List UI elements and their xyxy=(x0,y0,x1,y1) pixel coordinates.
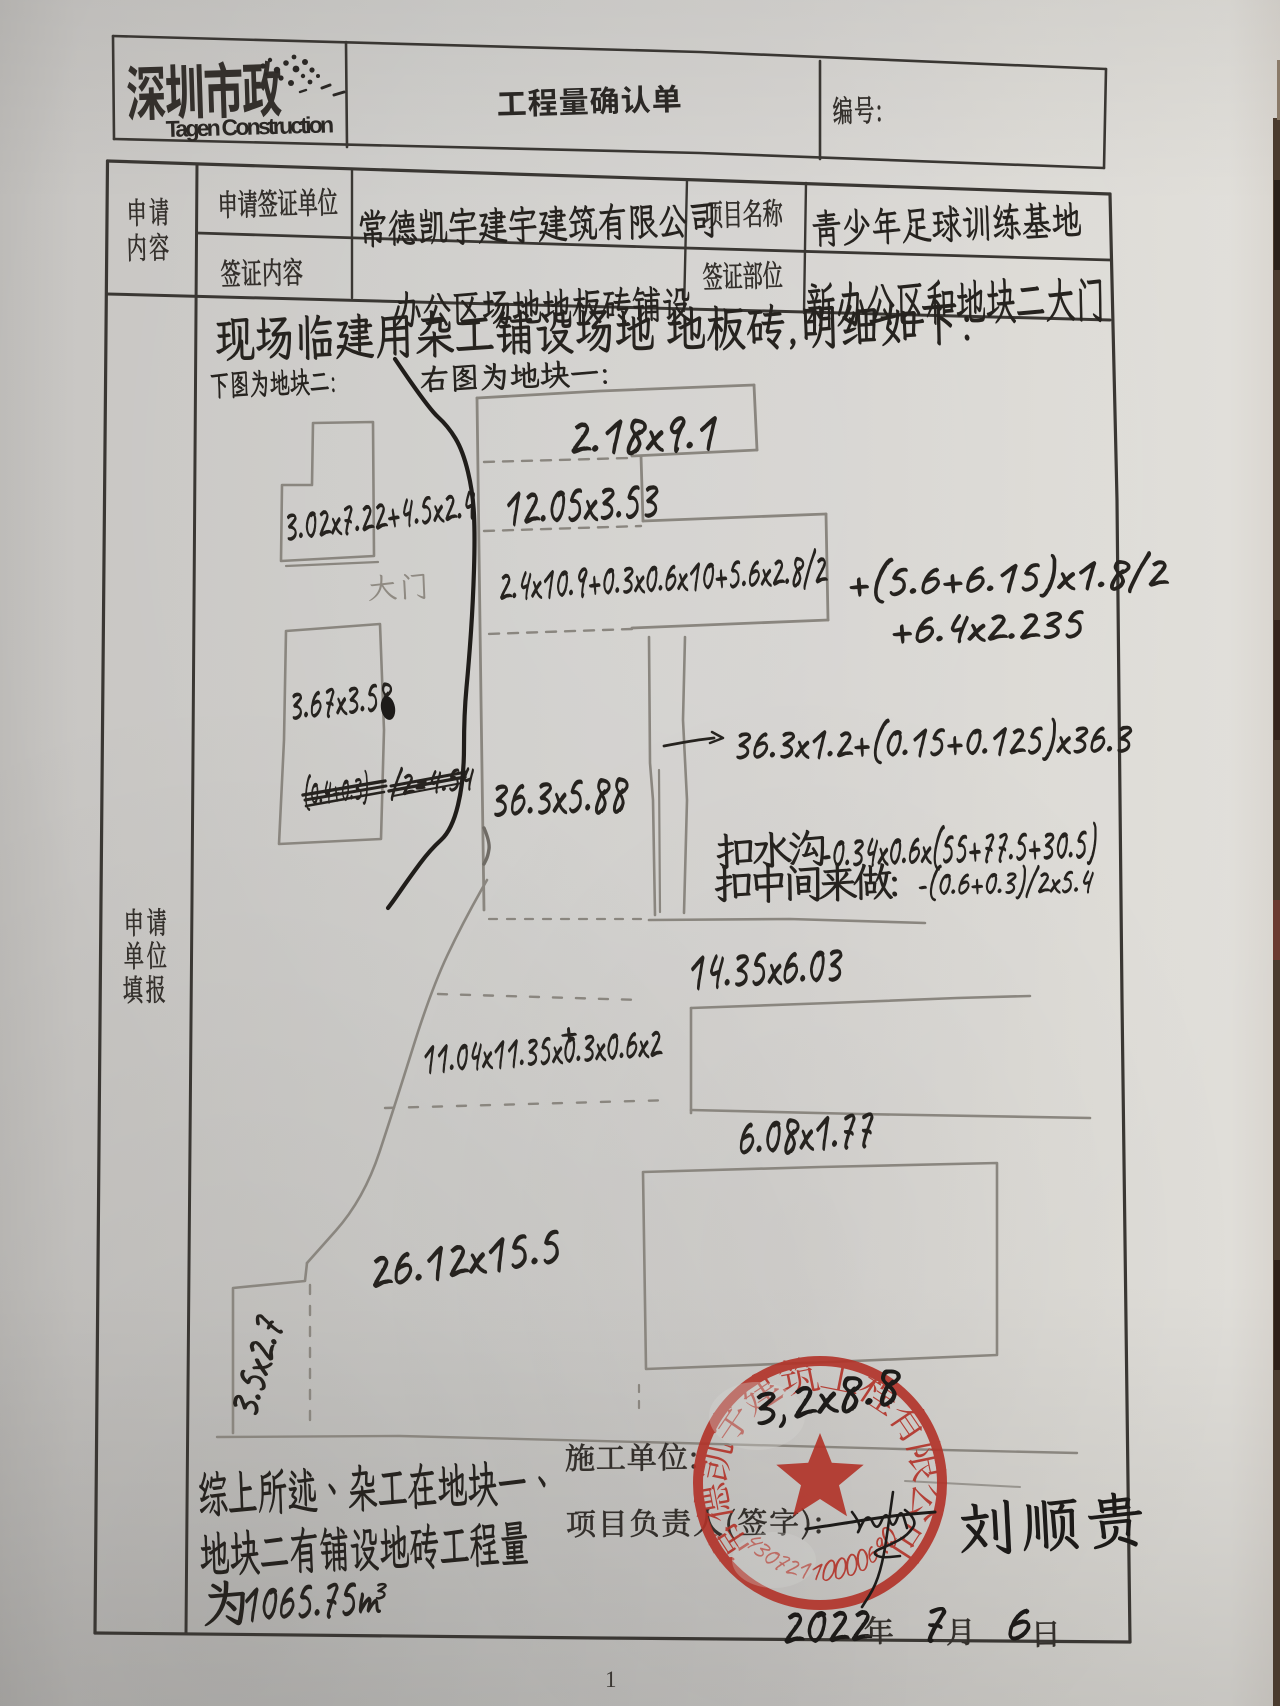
svg-text:Tagen Construction: Tagen Construction xyxy=(165,111,334,142)
svg-text:1: 1 xyxy=(605,1667,617,1692)
